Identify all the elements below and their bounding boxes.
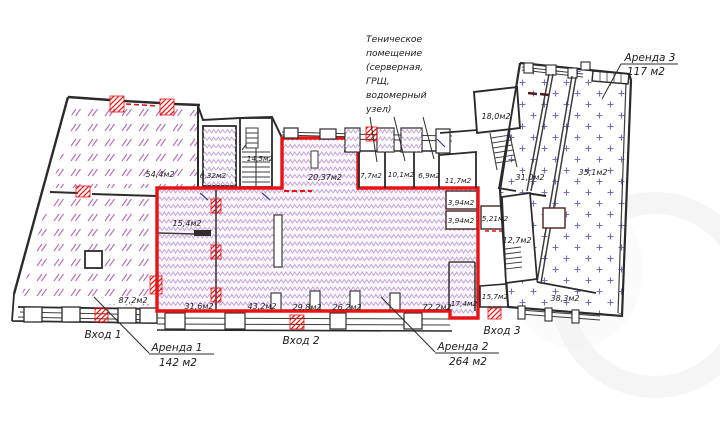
room-label: 15,4м2 bbox=[173, 219, 202, 228]
room-label: 31,0м2 bbox=[516, 173, 545, 182]
room-label: 6,9м2 bbox=[418, 171, 440, 180]
entrance2-label: Вход 2 bbox=[282, 335, 319, 347]
lease3-name: Аренда 3 bbox=[624, 52, 676, 64]
tech-note-line: помещение bbox=[366, 48, 422, 59]
entrance3-label: Вход 3 bbox=[483, 325, 520, 337]
room-label: 35,1м2 bbox=[579, 168, 608, 177]
room-label: 26,2м2 bbox=[333, 303, 362, 312]
right-wing bbox=[474, 62, 631, 323]
room-label: 6,32м2 bbox=[200, 171, 227, 180]
tech-note-line: (серверная, bbox=[366, 62, 423, 73]
room-label: 18,0м2 bbox=[482, 112, 511, 121]
room-label: 87,2м2 bbox=[119, 296, 148, 305]
floor-plan: 54,4м2 6,32м2 14,5м2 87,2м2 15,4м2 20,37… bbox=[0, 0, 720, 425]
tech-note: Теническое помещение (серверная, ГРЩ, во… bbox=[365, 34, 427, 115]
lease2-area: 264 м2 bbox=[449, 356, 487, 368]
tech-note-line: узел) bbox=[365, 104, 391, 115]
lease1-area: 142 м2 bbox=[159, 357, 197, 369]
entrance1-label: Вход 1 bbox=[84, 329, 121, 341]
room-label: 12,7м2 bbox=[503, 236, 532, 245]
tech-note-line: ГРЩ, bbox=[366, 76, 390, 87]
room-label: 5,21м2 bbox=[482, 214, 509, 223]
room-label: 15,7м2 bbox=[482, 292, 509, 301]
room-label: 31,6м2 bbox=[185, 302, 214, 311]
room-label: 20,37м2 bbox=[308, 173, 342, 182]
door-hatch bbox=[488, 308, 501, 319]
room-label: 54,4м2 bbox=[146, 170, 175, 179]
room-label: 10,1м2 bbox=[388, 170, 415, 179]
room-label: 43,2м2 bbox=[248, 302, 277, 311]
room-label: 29,8м2 bbox=[293, 303, 322, 312]
lease1-name: Аренда 1 bbox=[151, 342, 203, 354]
room-label: 11,7м2 bbox=[445, 176, 472, 185]
floor-plan-drawing: 54,4м2 6,32м2 14,5м2 87,2м2 15,4м2 20,37… bbox=[0, 0, 720, 425]
tech-note-line: Теническое bbox=[366, 34, 423, 45]
room-label: 38,3м2 bbox=[551, 294, 580, 303]
room-label: 7,7м2 bbox=[360, 171, 382, 180]
room-label: 3,94м2 bbox=[448, 216, 475, 225]
room-label: 17,4м2 bbox=[451, 299, 478, 308]
room-label: 14,5м2 bbox=[247, 154, 274, 163]
lease2-name: Аренда 2 bbox=[437, 341, 489, 353]
room-label: 72,2м2 bbox=[423, 303, 452, 312]
tech-note-line: водомерный bbox=[366, 90, 427, 101]
room-label: 3,94м2 bbox=[448, 198, 475, 207]
lease3-area: 117 м2 bbox=[627, 66, 665, 78]
